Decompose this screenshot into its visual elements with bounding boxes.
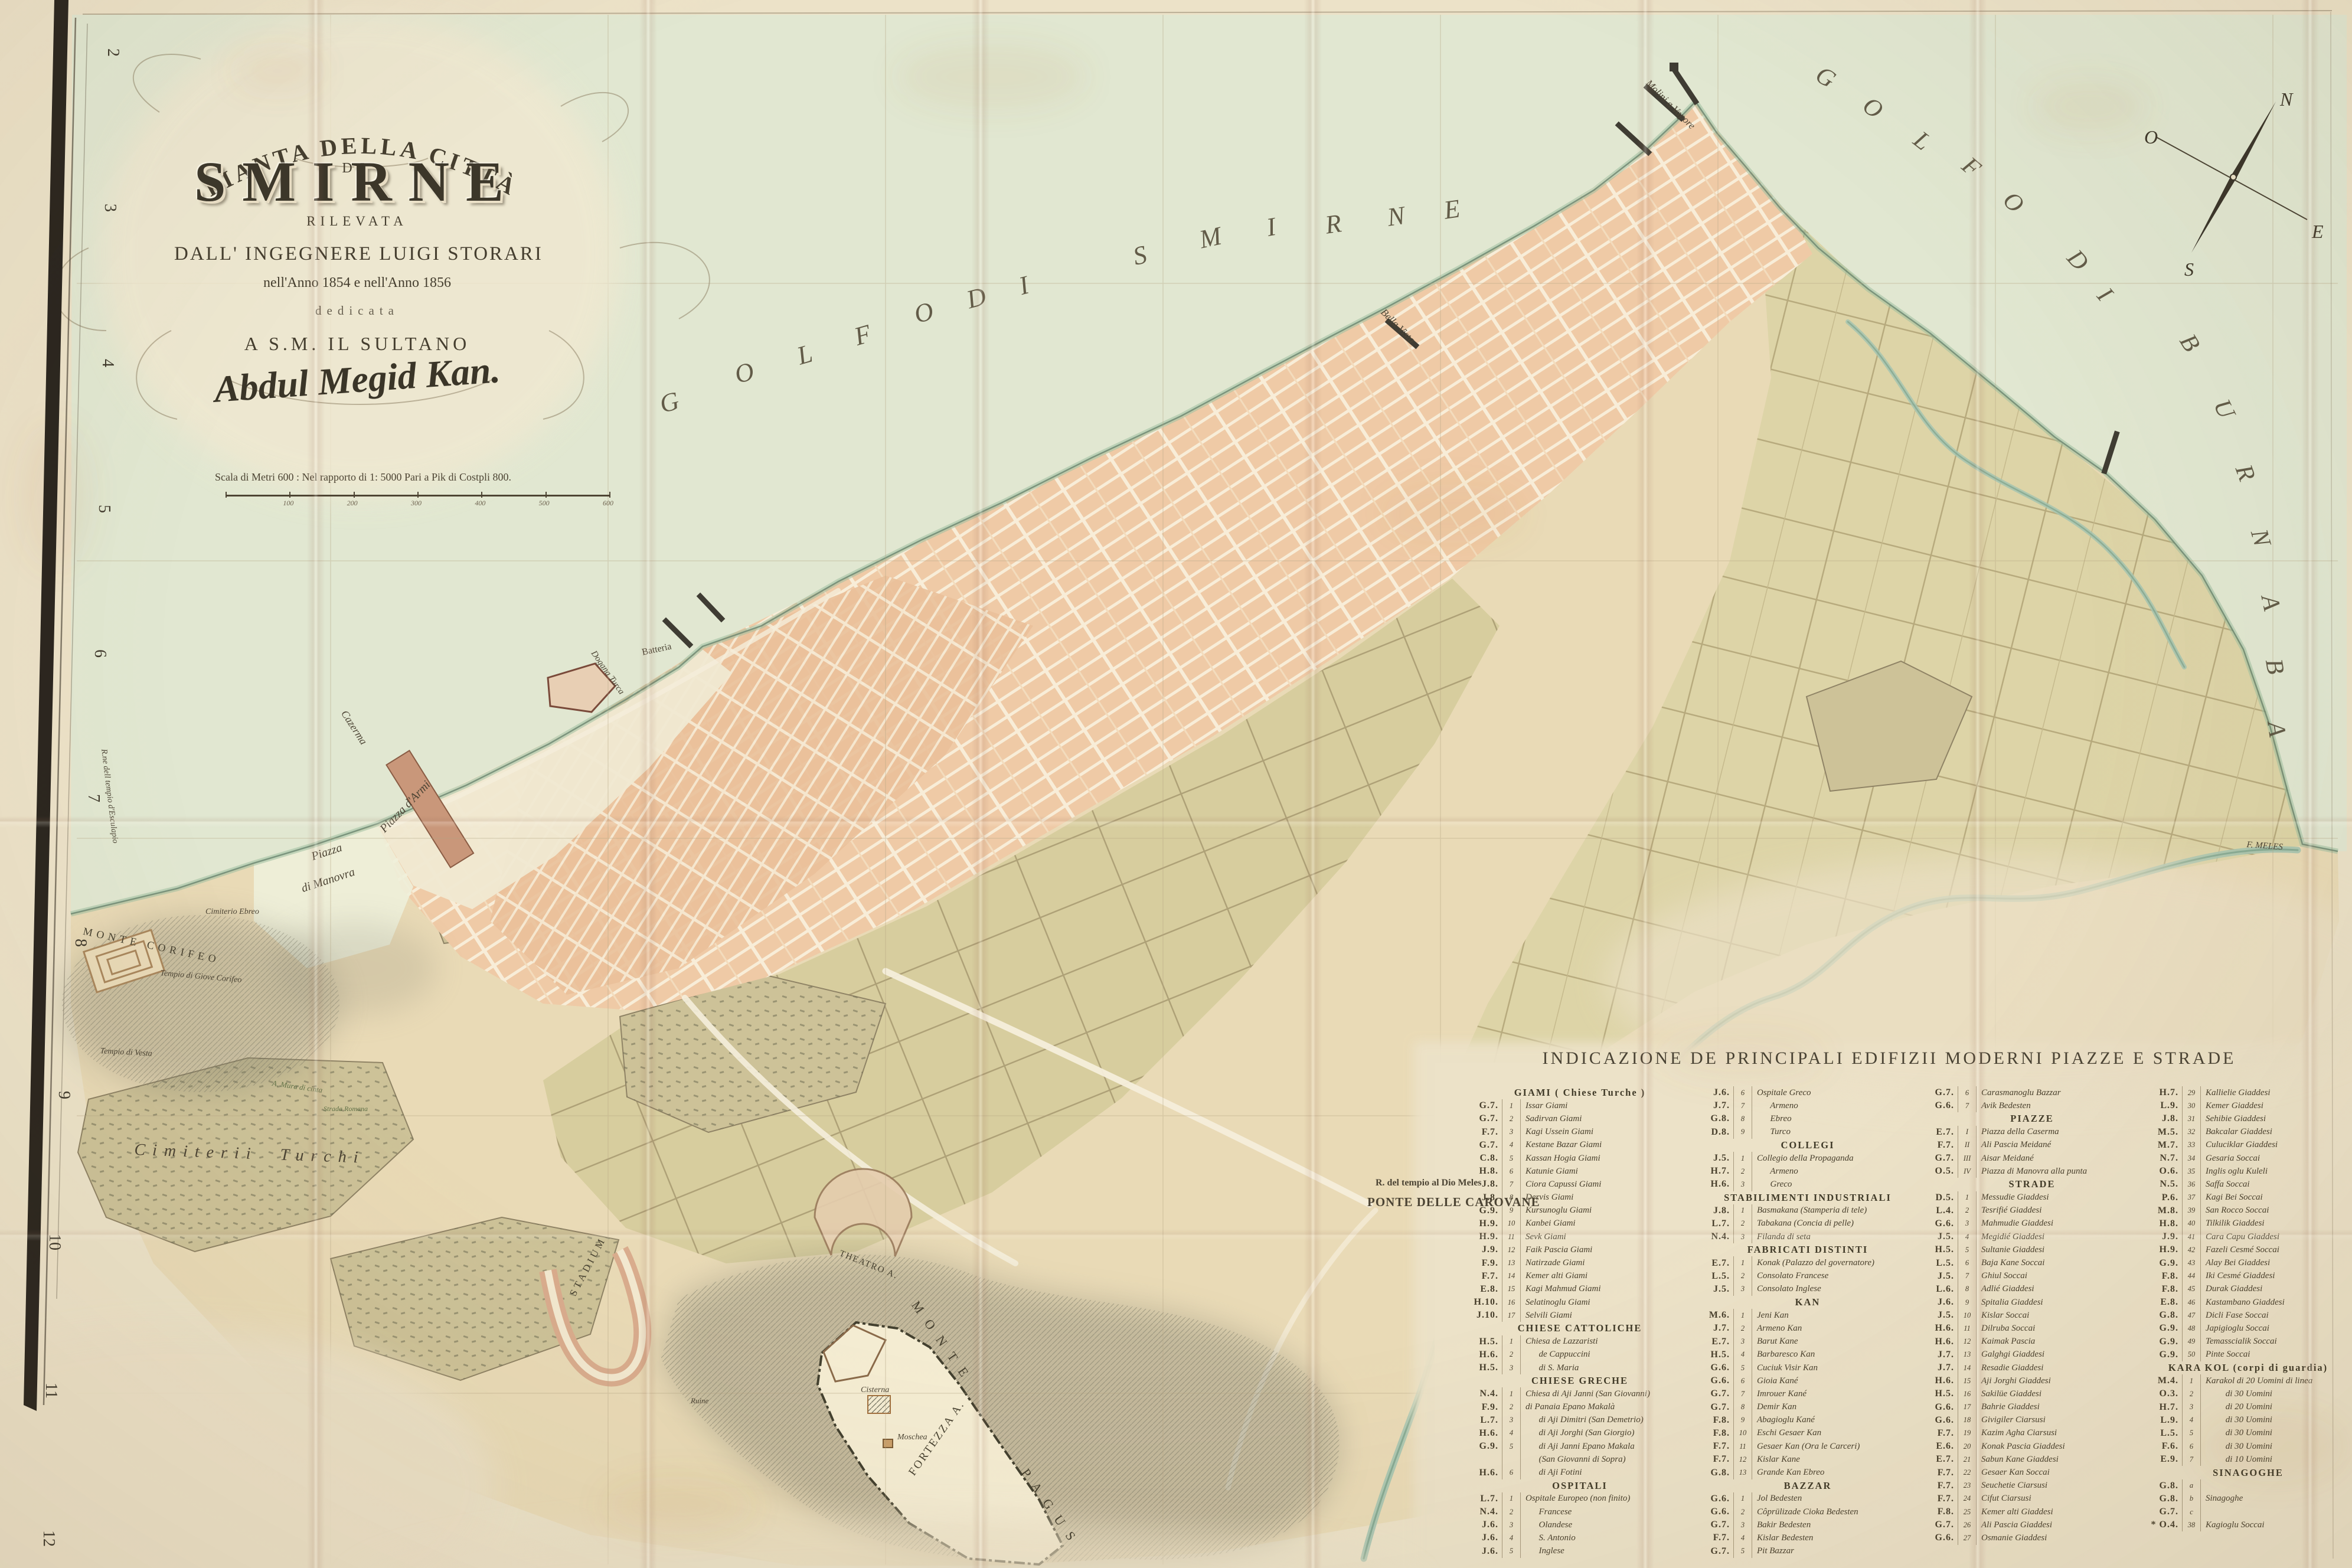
pier-head bbox=[1670, 63, 1678, 71]
map-title: SMIRNE bbox=[174, 149, 540, 214]
cisterna-structure bbox=[868, 1396, 890, 1413]
scale-tick bbox=[417, 492, 419, 498]
scale-tick-label: 500 bbox=[485, 499, 549, 508]
map-sheet: PIANTA DELLA CITTÀ DI SMIRNE RILEVATA DA… bbox=[0, 0, 2352, 1568]
scale-tick-label: 600 bbox=[550, 499, 613, 508]
scale-bar-numbers: 100200300400500600 bbox=[226, 499, 609, 508]
scale-tick bbox=[289, 492, 290, 498]
scale-tick bbox=[609, 492, 610, 498]
scale-text: Scala di Metri 600 : Nel rapporto di 1: … bbox=[168, 471, 558, 484]
title-dedicata: dedicata bbox=[174, 303, 540, 318]
title-rilevata: RILEVATA bbox=[174, 214, 540, 229]
scale-bar-line bbox=[226, 495, 609, 496]
scale-tick bbox=[354, 492, 355, 498]
scale-tick bbox=[481, 492, 482, 498]
scale-bar: 100200300400500600 bbox=[226, 495, 609, 508]
scale-tick-label: 300 bbox=[358, 499, 422, 508]
map-canvas: PIANTA DELLA CITTÀ bbox=[0, 0, 2352, 1568]
scale-tick-label: 400 bbox=[422, 499, 485, 508]
moschea-structure bbox=[883, 1439, 893, 1448]
legend-paper-core bbox=[1435, 1063, 2352, 1568]
scale-tick-label: 200 bbox=[293, 499, 357, 508]
scale-tick-label: 100 bbox=[230, 499, 293, 508]
scale-tick bbox=[226, 492, 227, 498]
title-years: nell'Anno 1854 e nell'Anno 1856 bbox=[174, 275, 540, 291]
scale-tick bbox=[545, 492, 547, 498]
title-author: DALL' INGEGNERE LUIGI STORARI bbox=[174, 243, 540, 265]
